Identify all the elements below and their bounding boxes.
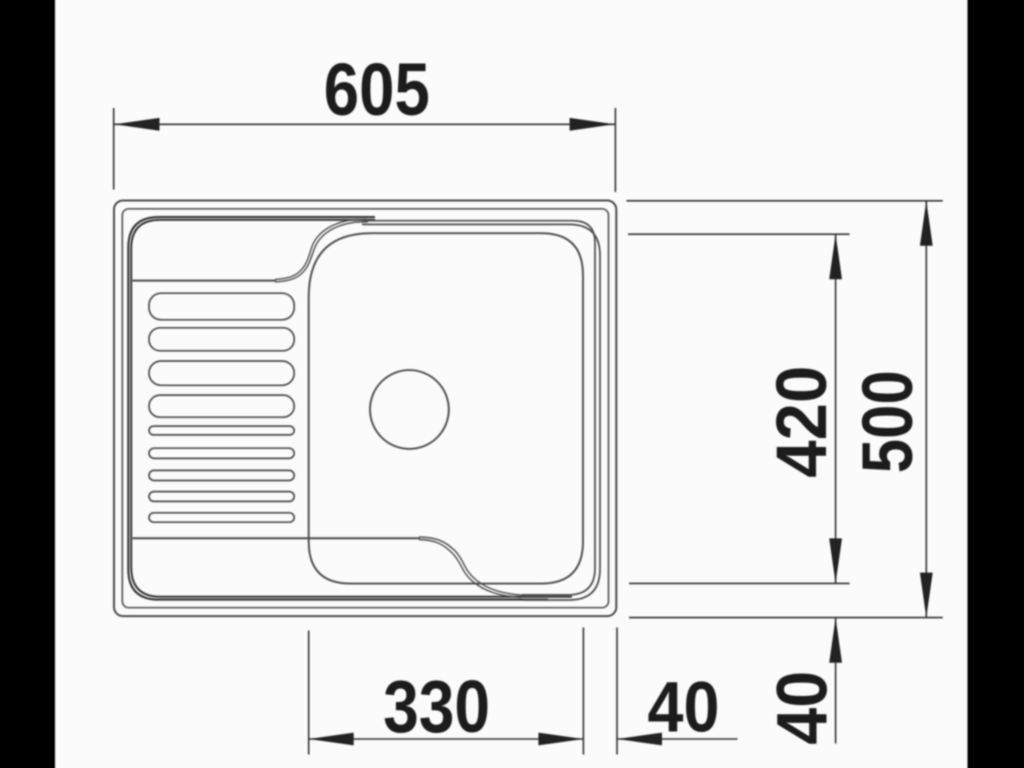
svg-text:40: 40 bbox=[764, 671, 843, 745]
svg-text:605: 605 bbox=[324, 48, 430, 131]
svg-text:420: 420 bbox=[763, 366, 842, 478]
svg-text:40: 40 bbox=[648, 669, 720, 748]
svg-text:330: 330 bbox=[383, 665, 490, 748]
svg-text:500: 500 bbox=[849, 370, 928, 473]
